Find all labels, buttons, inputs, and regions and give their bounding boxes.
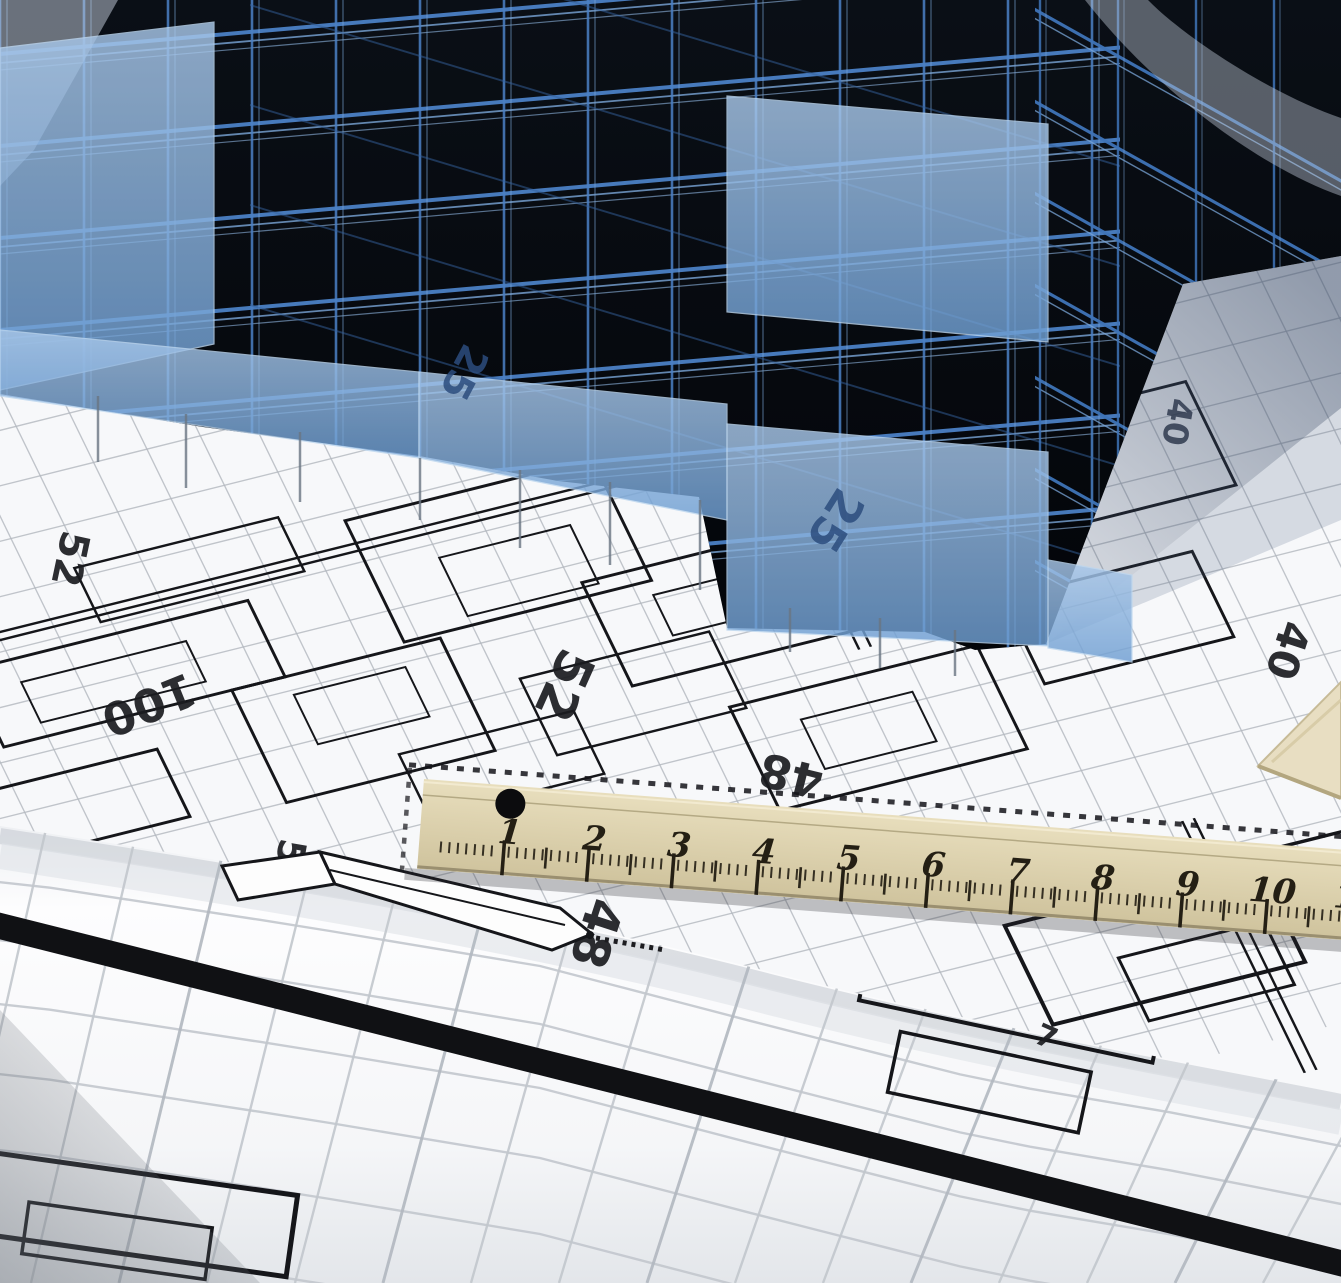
ruler-minor-tick <box>1110 893 1111 904</box>
ruler-minor-tick <box>1127 894 1128 905</box>
ruler-minor-tick <box>466 843 467 854</box>
ruler-half-tick <box>884 874 886 895</box>
ruler-minor-tick <box>890 876 891 887</box>
ruler-minor-tick <box>873 875 874 886</box>
ruler-minor-tick <box>601 854 602 865</box>
ruler-minor-tick <box>864 874 865 885</box>
ruler-half-tick <box>1053 887 1055 908</box>
ruler-minor-tick <box>907 877 908 888</box>
ruler-half-tick <box>969 880 971 901</box>
ruler-minor-tick <box>940 880 941 891</box>
ruler-minor-tick <box>1220 902 1221 913</box>
ruler-minor-tick <box>1034 887 1035 898</box>
photo-illustration: 521005248404025255487 1234567891011 <box>0 0 1341 1283</box>
ruler-minor-tick <box>635 857 636 868</box>
ruler-half-tick <box>799 867 801 888</box>
ruler-minor-tick <box>1313 909 1314 920</box>
ruler-minor-tick <box>1305 908 1306 919</box>
ruler-minor-tick <box>805 870 806 881</box>
ruler-minor-tick <box>1068 890 1069 901</box>
ruler-minor-tick <box>1059 889 1060 900</box>
ruler-minor-tick <box>1161 897 1162 908</box>
scene-canvas: 521005248404025255487 1234567891011 <box>0 0 1341 1283</box>
ruler-minor-tick <box>822 871 823 882</box>
ruler-minor-tick <box>1195 900 1196 911</box>
glass-panel <box>1048 560 1132 662</box>
ruler-minor-tick <box>729 864 730 875</box>
ruler-minor-tick <box>542 849 543 860</box>
ruler-minor-tick <box>737 864 738 875</box>
ruler-minor-tick <box>534 849 535 860</box>
glass-panel <box>727 424 1048 646</box>
ruler-minor-tick <box>856 873 857 884</box>
ruler-minor-tick <box>559 851 560 862</box>
ruler-minor-tick <box>712 862 713 873</box>
ruler-minor-tick <box>1135 895 1136 906</box>
ruler-minor-tick <box>1042 888 1043 899</box>
ruler-minor-tick <box>474 844 475 855</box>
ruler-minor-tick <box>1212 901 1213 912</box>
ruler-minor-tick <box>695 861 696 872</box>
ruler-minor-tick <box>686 860 687 871</box>
ruler-minor-tick <box>703 862 704 873</box>
ruler-minor-tick <box>991 884 992 895</box>
ruler-minor-tick <box>1237 903 1238 914</box>
plan-number: 40 <box>1153 395 1201 449</box>
ruler-minor-tick <box>966 882 967 893</box>
ruler-minor-tick <box>1152 896 1153 907</box>
ruler-minor-tick <box>957 881 958 892</box>
ruler-minor-tick <box>568 851 569 862</box>
ruler-minor-tick <box>1229 902 1230 913</box>
glass-panel <box>727 96 1048 342</box>
ruler-half-tick <box>1223 900 1225 921</box>
ruler-minor-tick <box>796 869 797 880</box>
ruler-minor-tick <box>788 868 789 879</box>
ruler-minor-tick <box>1051 888 1052 899</box>
pencil-tip <box>586 931 594 939</box>
ruler-minor-tick <box>1144 896 1145 907</box>
ruler-half-tick <box>1308 906 1310 927</box>
ruler-minor-tick <box>644 857 645 868</box>
ruler-minor-tick <box>898 877 899 888</box>
ruler-half-tick <box>630 854 632 875</box>
ruler-minor-tick <box>1203 900 1204 911</box>
ruler-minor-tick <box>771 867 772 878</box>
ruler-minor-tick <box>551 850 552 861</box>
ruler-minor-tick <box>983 883 984 894</box>
ruler-minor-tick <box>1322 909 1323 920</box>
ruler-minor-tick <box>720 863 721 874</box>
ruler-minor-tick <box>610 855 611 866</box>
ruler-minor-tick <box>618 855 619 866</box>
ruler-half-tick <box>545 848 547 869</box>
ruler-minor-tick <box>881 875 882 886</box>
ruler-minor-tick <box>449 842 450 853</box>
ruler-minor-tick <box>779 868 780 879</box>
ruler-minor-tick <box>652 858 653 869</box>
ruler-minor-tick <box>525 848 526 859</box>
ruler-minor-tick <box>1076 890 1077 901</box>
ruler-minor-tick <box>949 881 950 892</box>
ruler-minor-tick <box>813 870 814 881</box>
ruler-minor-tick <box>517 847 518 858</box>
ruler-minor-tick <box>457 843 458 854</box>
ruler-minor-tick <box>440 842 441 853</box>
ruler-minor-tick <box>627 856 628 867</box>
ruler-minor-tick <box>974 883 975 894</box>
ruler-minor-tick <box>483 845 484 856</box>
ruler-half-tick <box>714 861 716 882</box>
ruler-minor-tick <box>1296 907 1297 918</box>
ruler-minor-tick <box>1025 887 1026 898</box>
ruler-half-tick <box>1138 893 1140 914</box>
ruler-minor-tick <box>1118 894 1119 905</box>
